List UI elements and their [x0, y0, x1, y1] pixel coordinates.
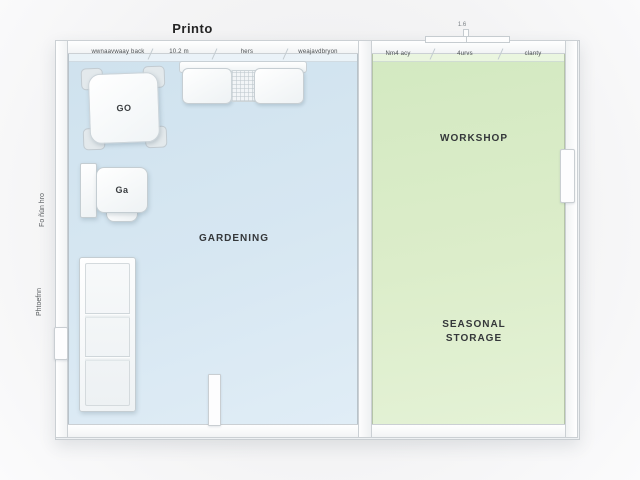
square-table-label: GO — [116, 103, 131, 114]
annotation-top-3: hers — [241, 49, 253, 55]
wall-bottom — [55, 424, 578, 438]
room-workshop-floor — [372, 53, 565, 425]
side-unit-panel — [80, 163, 97, 218]
wall-left — [55, 40, 68, 438]
annotation-top-7: clanty — [525, 51, 542, 57]
door-partition-stub — [208, 374, 221, 426]
annotation-left-1: Fo ñün hro — [39, 165, 51, 255]
annotation-left-2: Phtoefnn — [36, 257, 48, 347]
room-label-gardening: GARDENING — [199, 233, 269, 244]
annotation-top-1: wwnaavwaay back — [91, 49, 144, 55]
annotation-top-4: weajavdbryon — [298, 49, 337, 55]
annotation-top-6: 4urvs — [457, 51, 473, 57]
wall-right — [565, 40, 578, 438]
seasonal-storage-line2: STORAGE — [442, 332, 506, 346]
room-label-workshop: WORKSHOP — [440, 133, 508, 144]
dimension-text: 1.6 — [440, 22, 484, 28]
annotation-top-5: Nm4 acy — [385, 51, 410, 57]
annotation-top-2: 10.2 m — [169, 49, 189, 55]
workbench — [179, 61, 307, 105]
side-unit-label: Ga — [115, 185, 128, 195]
seasonal-storage-line1: SEASONAL — [442, 318, 506, 332]
tall-shelf — [79, 257, 136, 412]
plan-title: Printo — [140, 21, 245, 36]
window-left-wall — [54, 327, 68, 360]
side-unit: Ga — [96, 167, 148, 213]
room-label-seasonal-storage: SEASONAL STORAGE — [442, 318, 506, 346]
shelf-divider — [85, 313, 130, 318]
dimension-bar-divider — [466, 36, 467, 43]
shelf-divider — [85, 356, 130, 361]
workbench-left-top — [182, 68, 232, 104]
square-table-top: GO — [88, 72, 160, 144]
wall-divider — [358, 40, 372, 438]
window-right-wall — [560, 149, 575, 203]
square-table: GO — [85, 69, 164, 148]
dimension-bar — [425, 36, 510, 43]
workbench-right-top — [254, 68, 304, 104]
shelf-inner-panel — [85, 263, 130, 406]
